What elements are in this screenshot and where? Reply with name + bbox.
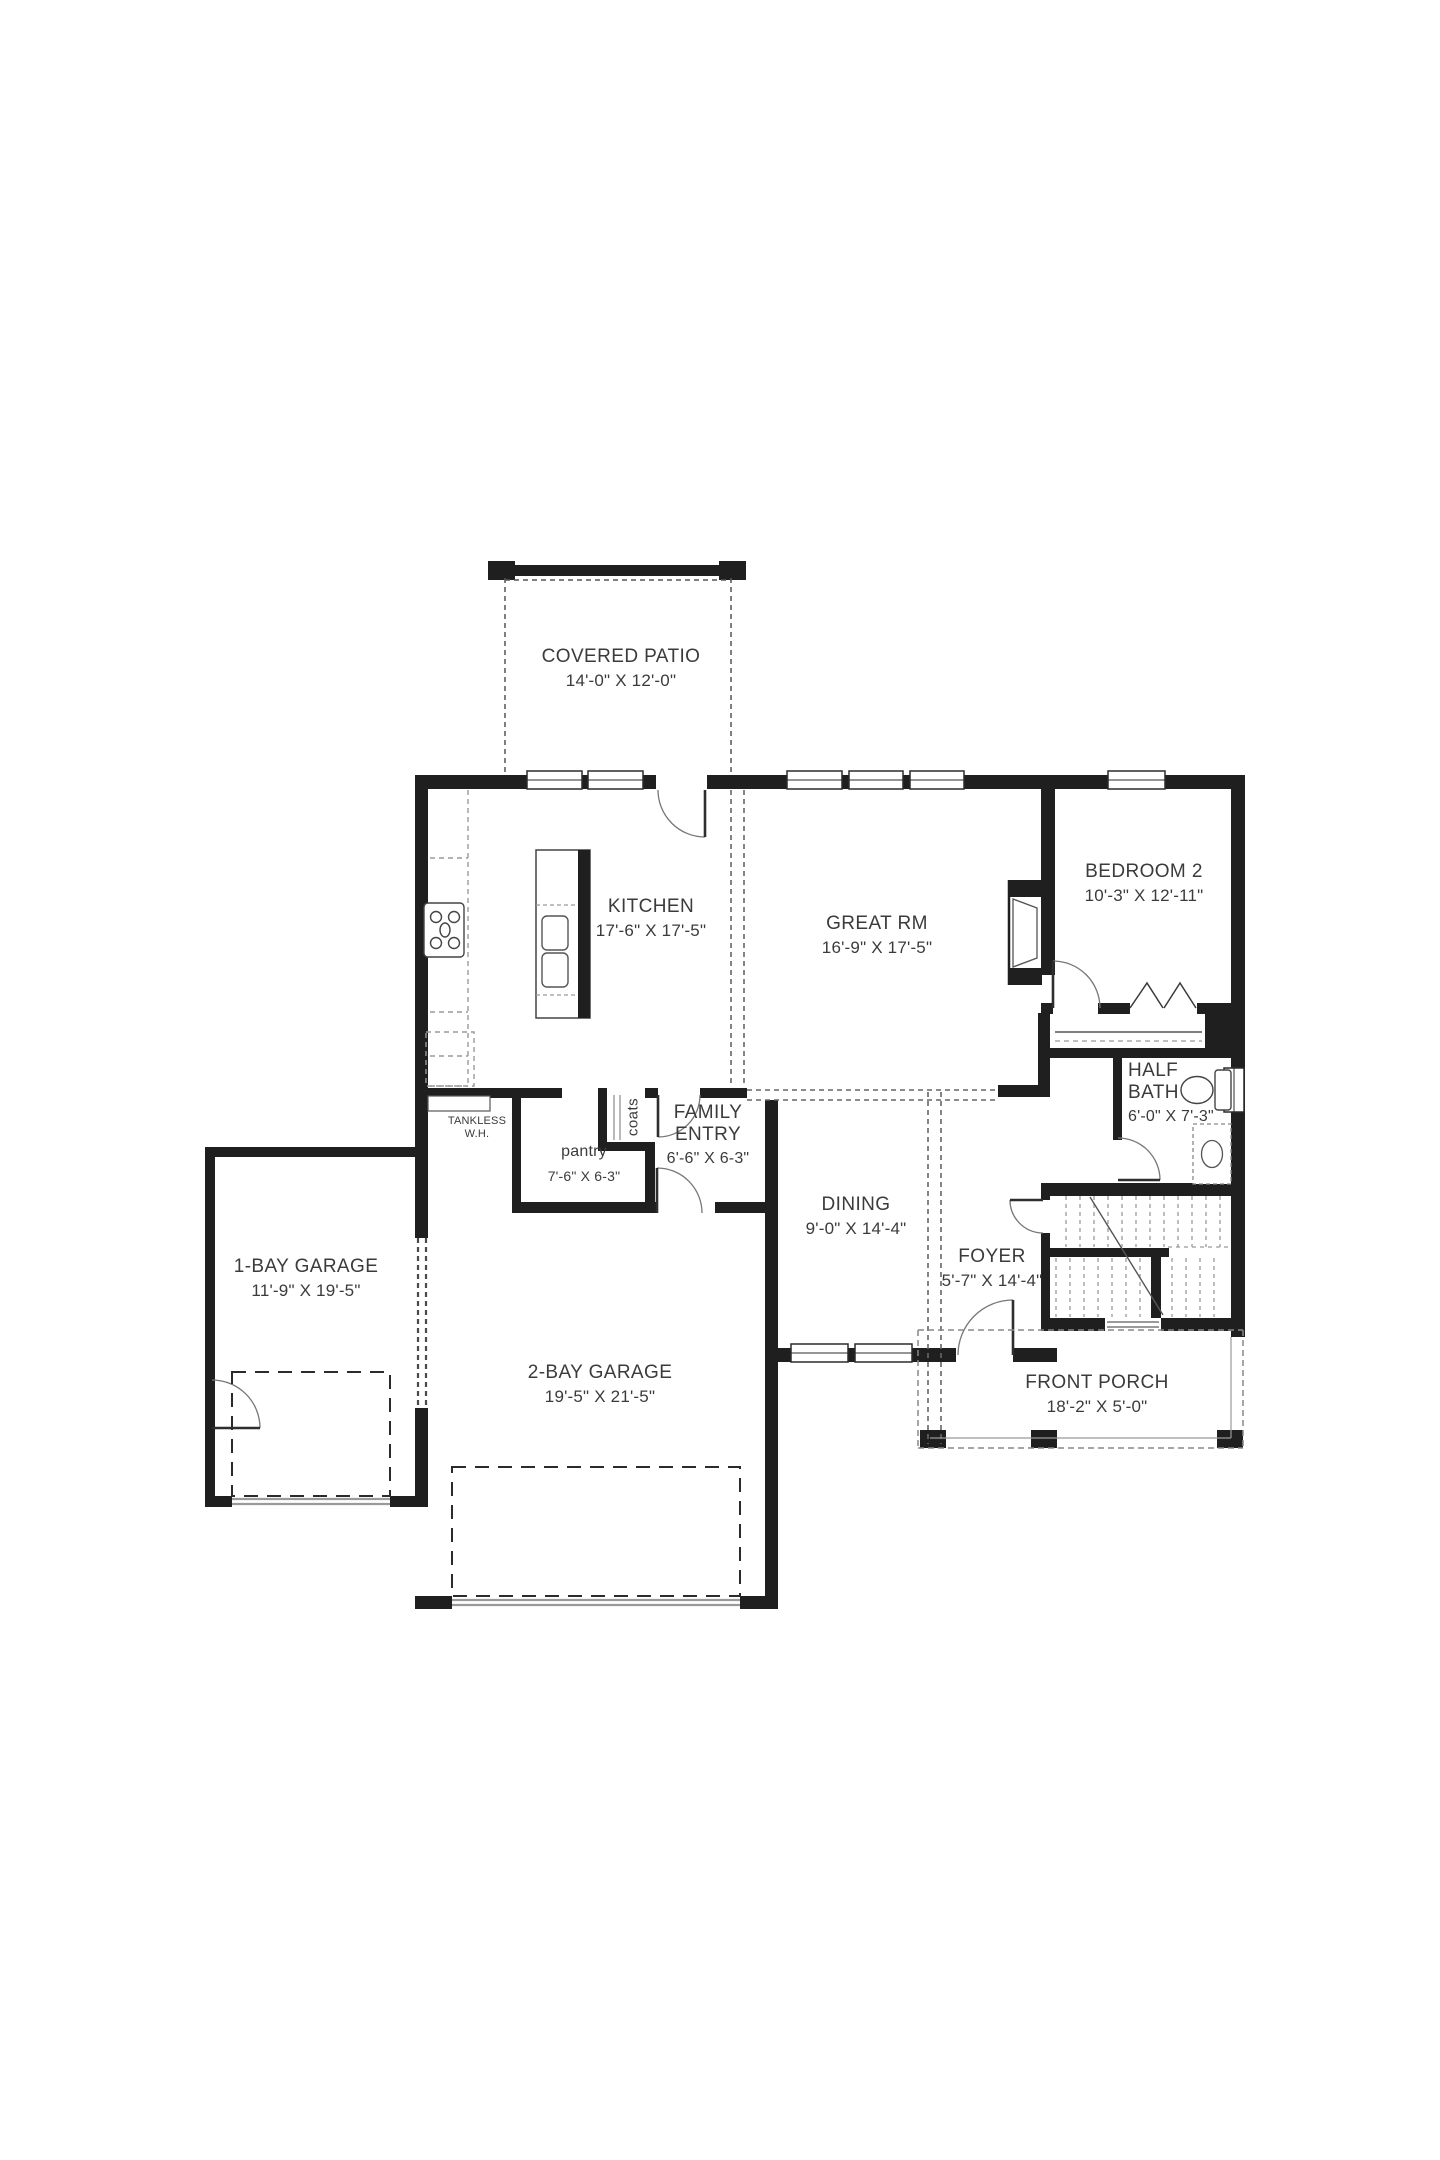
coats-rod: [614, 1095, 620, 1140]
bedroom-2-door-arc: [1053, 961, 1100, 1008]
garage-doors: [232, 1499, 740, 1605]
fireplace-icon: [1008, 880, 1042, 985]
room-label-1-bay-garage: 1-BAY GARAGE 11'-9" X 19'-5": [234, 1256, 379, 1302]
label-tankless-wh: TANKLESS W.H.: [448, 1115, 506, 1141]
room-label-family-entry: FAMILY ENTRY 6'-6" X 6-3": [667, 1102, 750, 1170]
parking-pad-1bay: [232, 1372, 390, 1496]
kitchen-fixtures: [424, 790, 620, 1140]
understair-door-arc: [1010, 1200, 1043, 1233]
room-label-pantry: pantry 7'-6" X 6-3": [548, 1141, 621, 1187]
kitchen-island: [536, 850, 590, 1018]
walls: [205, 561, 1245, 1609]
room-label-covered-patio: COVERED PATIO 14'-0" X 12'-0": [542, 646, 701, 692]
label-coats: coats: [625, 1098, 642, 1136]
sink-icon: [542, 916, 568, 950]
room-label-foyer: FOYER 5'-7" X 14'-4": [942, 1246, 1043, 1292]
room-label-bedroom-2: BEDROOM 2 10'-3" X 12'-11": [1085, 861, 1204, 907]
parking-pad-2bay: [452, 1467, 740, 1596]
stairs: [1056, 1196, 1228, 1327]
garage-family-entry-door-arc: [657, 1168, 702, 1213]
vanity-sink-icon: [1193, 1124, 1231, 1184]
patio-door-arc: [658, 790, 705, 837]
half-bath-door-arc: [1118, 1138, 1160, 1180]
front-door-arc: [958, 1300, 1013, 1355]
tankless-wh-icon: [428, 1096, 490, 1111]
floor-plan-svg: [0, 0, 1440, 2160]
room-label-dining: DINING 9'-0" X 14'-4": [806, 1194, 907, 1240]
room-label-half-bath: HALF BATH 6'-0" X 7'-3": [1128, 1060, 1214, 1128]
room-label-front-porch: FRONT PORCH 18'-2" X 5'-0": [1025, 1372, 1168, 1418]
fridge-icon: [426, 1032, 474, 1086]
bifold-doors: [1130, 983, 1196, 1008]
dashed-lines: [232, 578, 1243, 1596]
room-label-great-rm: GREAT RM 16'-9" X 17'-5": [822, 913, 932, 959]
room-label-kitchen: KITCHEN 17'-6" X 17'-5": [596, 896, 706, 942]
closet-shelf: [1055, 1032, 1202, 1041]
room-label-2-bay-garage: 2-BAY GARAGE 19'-5" X 21'-5": [528, 1362, 673, 1408]
range-icon: [424, 903, 464, 957]
floor-plan-page: COVERED PATIO 14'-0" X 12'-0" KITCHEN 17…: [0, 0, 1440, 2160]
garage-side-door-arc: [212, 1380, 260, 1428]
